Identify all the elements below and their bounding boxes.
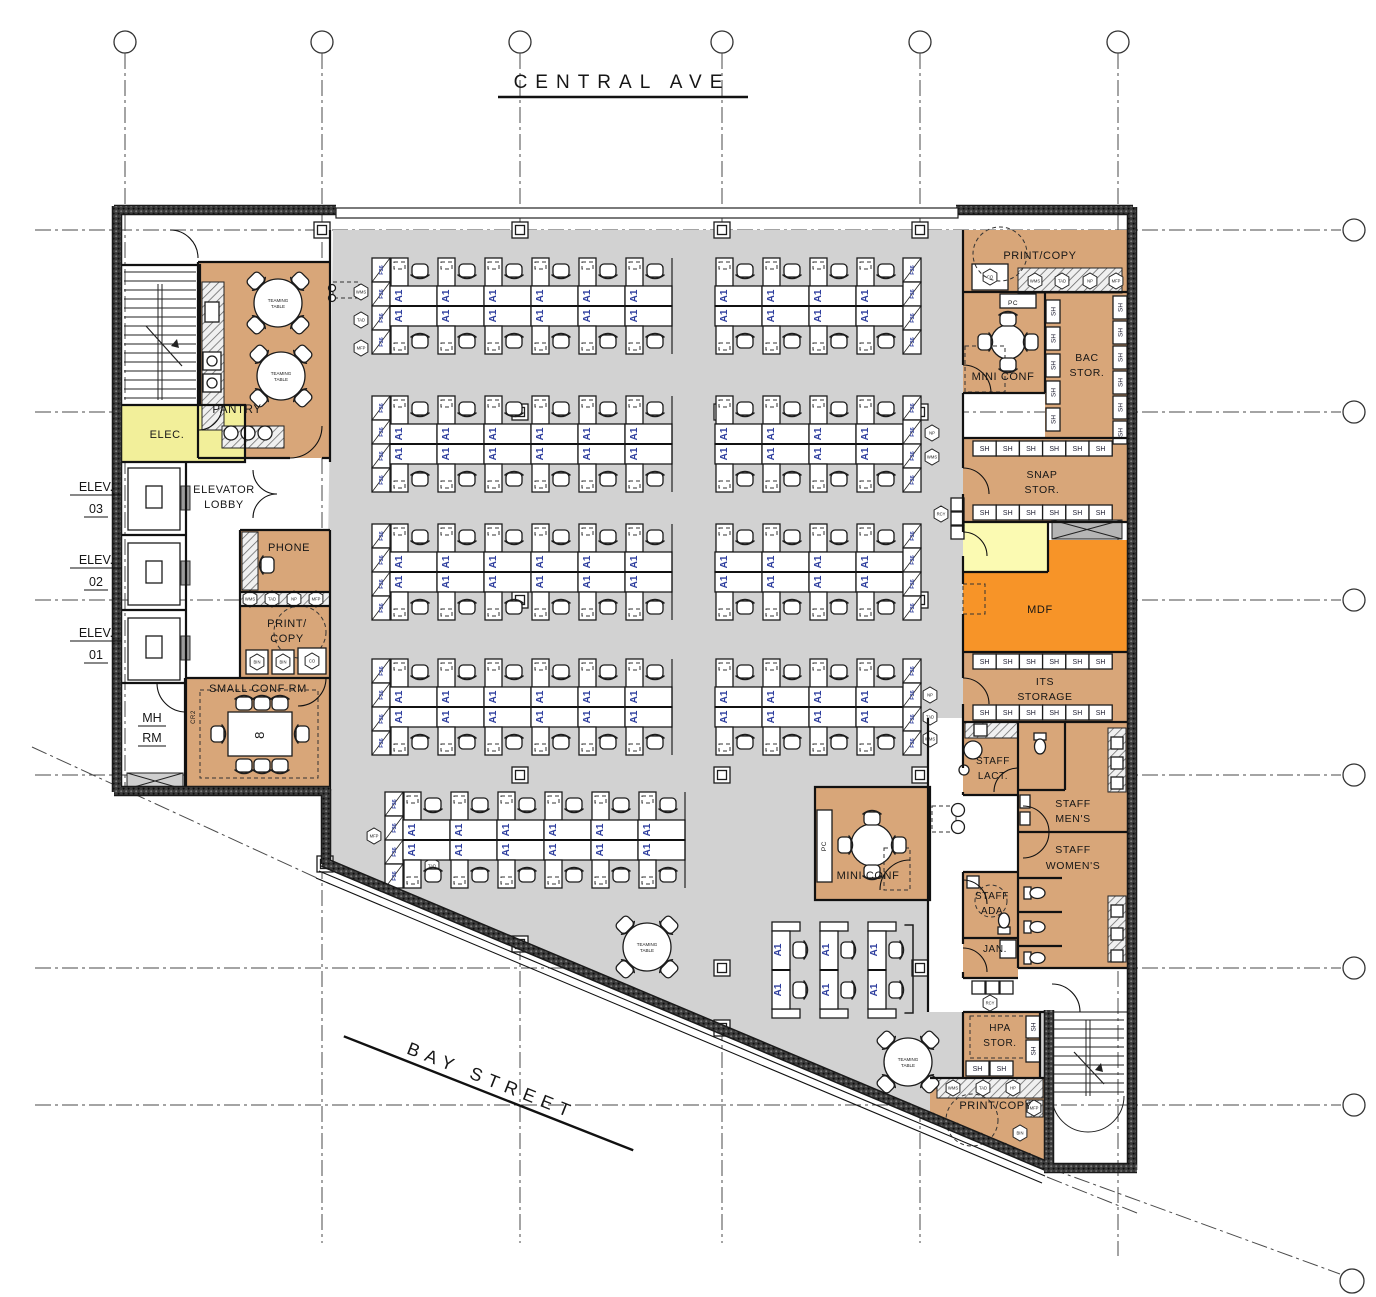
svg-text:HP: HP xyxy=(1010,1086,1016,1091)
shelf-unit: SH xyxy=(1046,408,1060,431)
grid-bubble xyxy=(1343,219,1365,241)
chair xyxy=(518,868,536,883)
svg-text:F36: F36 xyxy=(379,579,385,588)
svg-text:WMS: WMS xyxy=(356,290,366,295)
svg-text:F36: F36 xyxy=(379,289,385,298)
chair xyxy=(830,264,848,279)
svg-text:A1: A1 xyxy=(629,575,640,588)
toilet xyxy=(1024,921,1045,933)
svg-text:A1: A1 xyxy=(501,823,512,836)
chair xyxy=(565,798,583,813)
svg-text:A1: A1 xyxy=(394,575,405,588)
corridor-floor xyxy=(928,718,963,1012)
shelf-unit: SH xyxy=(973,705,996,720)
shelf-unit: SH xyxy=(996,441,1019,456)
label-pc-top: PC xyxy=(1008,300,1018,307)
svg-text:A1: A1 xyxy=(441,309,452,322)
svg-text:F36: F36 xyxy=(379,313,385,322)
svg-text:TAD: TAD xyxy=(1058,279,1066,284)
svg-text:MFP: MFP xyxy=(312,597,321,602)
label-snap1: SNAP xyxy=(1027,469,1058,481)
svg-text:A1: A1 xyxy=(821,983,832,996)
svg-text:SH: SH xyxy=(1096,510,1106,517)
svg-text:MFP: MFP xyxy=(370,834,379,839)
svg-text:A1: A1 xyxy=(441,690,452,703)
chair xyxy=(599,735,617,750)
equipment-tag-icon: CO xyxy=(305,653,319,669)
svg-text:A1: A1 xyxy=(582,575,593,588)
svg-text:NP: NP xyxy=(291,597,297,602)
svg-text:A1: A1 xyxy=(394,427,405,440)
chair xyxy=(552,735,570,750)
label-womens2: WOMEN'S xyxy=(1046,860,1101,872)
equipment-tag-icon: WMS xyxy=(354,284,368,300)
svg-text:A1: A1 xyxy=(766,289,777,302)
door-swing xyxy=(253,470,277,494)
svg-text:A1: A1 xyxy=(813,309,824,322)
grid-bubble xyxy=(1107,31,1129,53)
chair xyxy=(783,264,801,279)
equipment-tag-icon: TAD xyxy=(354,312,368,328)
svg-text:F36: F36 xyxy=(379,603,385,612)
file-storage: F36F36F36F36 xyxy=(372,659,390,755)
shelf-unit: SH xyxy=(1046,300,1060,323)
svg-text:A1: A1 xyxy=(535,447,546,460)
chair xyxy=(877,472,895,487)
svg-text:SH: SH xyxy=(1050,307,1057,316)
shelf-unit: SH xyxy=(973,441,996,456)
chair xyxy=(471,798,489,813)
chair xyxy=(458,334,476,349)
svg-text:A1: A1 xyxy=(629,710,640,723)
shelf-unit: SH xyxy=(1019,505,1042,520)
svg-text:A1: A1 xyxy=(813,690,824,703)
chair xyxy=(599,530,617,545)
svg-text:A1: A1 xyxy=(629,309,640,322)
svg-text:A1: A1 xyxy=(488,710,499,723)
svg-text:SH: SH xyxy=(1117,378,1124,387)
label-bac1: BAC xyxy=(1075,352,1098,364)
svg-text:SH: SH xyxy=(1003,510,1013,517)
chair xyxy=(999,312,1017,327)
grid-bubble xyxy=(1343,401,1365,423)
svg-text:A1: A1 xyxy=(719,289,730,302)
chair xyxy=(877,334,895,349)
svg-text:TAD: TAD xyxy=(979,1086,987,1091)
chair xyxy=(411,600,429,615)
label-printcopy-south: PRINT/COPY xyxy=(959,1100,1032,1112)
svg-text:SH: SH xyxy=(973,1066,983,1073)
svg-text:SH: SH xyxy=(1050,361,1057,370)
svg-text:F36: F36 xyxy=(910,265,916,274)
svg-text:F36: F36 xyxy=(379,738,385,747)
shelf-unit: SH xyxy=(1046,381,1060,404)
svg-text:A1: A1 xyxy=(535,710,546,723)
svg-text:A1: A1 xyxy=(535,575,546,588)
svg-text:F36: F36 xyxy=(910,555,916,564)
svg-text:SH: SH xyxy=(1049,659,1059,666)
chair xyxy=(424,798,442,813)
svg-text:F36: F36 xyxy=(392,847,398,856)
svg-text:A1: A1 xyxy=(488,690,499,703)
chair xyxy=(830,334,848,349)
teaming-table: TEAMINGTABLE xyxy=(248,343,314,409)
file-storage: F36F36F36F36 xyxy=(372,258,390,354)
svg-text:A1: A1 xyxy=(407,823,418,836)
chair xyxy=(830,600,848,615)
svg-text:A1: A1 xyxy=(454,823,465,836)
svg-text:F36: F36 xyxy=(392,823,398,832)
svg-text:A1: A1 xyxy=(488,447,499,460)
svg-text:A1: A1 xyxy=(813,427,824,440)
svg-text:F36: F36 xyxy=(910,714,916,723)
svg-text:TEAMING: TEAMING xyxy=(271,371,292,376)
chair xyxy=(552,665,570,680)
shelf-unit: SH xyxy=(1089,705,1112,720)
shelf-unit: SH xyxy=(996,505,1019,520)
svg-text:MH: MH xyxy=(142,711,161,725)
chair xyxy=(518,798,536,813)
svg-text:F36: F36 xyxy=(910,313,916,322)
label-mini-conf-south: MINI CONF xyxy=(837,870,900,882)
chair xyxy=(646,402,664,417)
chair xyxy=(411,472,429,487)
svg-text:F36: F36 xyxy=(379,714,385,723)
svg-text:CO: CO xyxy=(309,659,316,664)
equipment-tag-icon: NP xyxy=(925,425,939,441)
svg-text:F36: F36 xyxy=(379,690,385,699)
svg-text:A1: A1 xyxy=(582,555,593,568)
equipment-tag-icon: RCY xyxy=(983,995,997,1011)
svg-text:A1: A1 xyxy=(860,289,871,302)
chair xyxy=(863,811,881,826)
chair xyxy=(411,264,429,279)
shelf-unit: SH xyxy=(996,705,1019,720)
chair xyxy=(552,264,570,279)
shelf-unit: SH xyxy=(1113,396,1127,419)
chair xyxy=(295,725,310,743)
chair xyxy=(783,530,801,545)
svg-text:F36: F36 xyxy=(910,738,916,747)
svg-text:A1: A1 xyxy=(488,427,499,440)
svg-text:A1: A1 xyxy=(719,427,730,440)
svg-text:SH: SH xyxy=(1117,303,1124,312)
equipment-tag-icon: NP xyxy=(923,687,937,703)
toilet xyxy=(1034,733,1046,754)
idf-yellow-floor xyxy=(963,522,1048,572)
svg-text:A1: A1 xyxy=(582,309,593,322)
shelf-unit: SH xyxy=(973,654,996,669)
chair xyxy=(235,759,253,774)
counter xyxy=(242,532,258,590)
equipment-tag-icon: RCY xyxy=(934,506,948,522)
chair xyxy=(877,402,895,417)
grid-bubble xyxy=(909,31,931,53)
svg-text:F36: F36 xyxy=(910,690,916,699)
svg-text:SH: SH xyxy=(1117,328,1124,337)
chair xyxy=(458,402,476,417)
shelf-unit: SH xyxy=(1089,441,1112,456)
svg-text:WMS: WMS xyxy=(927,455,937,460)
svg-text:SH: SH xyxy=(1073,446,1083,453)
chair xyxy=(783,600,801,615)
svg-text:SH: SH xyxy=(980,510,990,517)
chair xyxy=(783,472,801,487)
chair xyxy=(889,941,904,959)
label-snap2: STOR. xyxy=(1025,484,1060,496)
svg-text:SH: SH xyxy=(1096,710,1106,717)
counter xyxy=(965,722,1018,738)
svg-text:TABLE: TABLE xyxy=(640,948,654,953)
svg-text:F36: F36 xyxy=(392,799,398,808)
svg-text:SH: SH xyxy=(1049,710,1059,717)
svg-text:ELEV.: ELEV. xyxy=(79,480,113,494)
label-phone: PHONE xyxy=(268,542,310,554)
svg-text:SH: SH xyxy=(1073,710,1083,717)
label-lact2: LACT. xyxy=(978,771,1008,782)
svg-text:SH: SH xyxy=(1050,334,1057,343)
equipment-tag-icon: WMS xyxy=(1028,273,1042,289)
file-storage: F36F36F36F36 xyxy=(903,659,921,755)
grid-bubble xyxy=(114,31,136,53)
svg-text:A1: A1 xyxy=(488,575,499,588)
chair xyxy=(978,333,993,351)
equipment-tag-icon: MFP xyxy=(367,828,381,844)
label-mini-conf-top: MINI CONF xyxy=(972,371,1035,383)
svg-text:A1: A1 xyxy=(454,843,465,856)
shelf-unit: SH xyxy=(1019,654,1042,669)
chair xyxy=(271,759,289,774)
svg-text:A1: A1 xyxy=(394,690,405,703)
shelf-unit: SH xyxy=(1113,371,1127,394)
label-its1: ITS xyxy=(1036,676,1054,688)
shelf-unit: SH xyxy=(1043,654,1066,669)
svg-text:SH: SH xyxy=(1050,415,1057,424)
chair xyxy=(458,472,476,487)
svg-text:A1: A1 xyxy=(501,843,512,856)
svg-text:A1: A1 xyxy=(869,983,880,996)
equipment-tag-icon: BIN xyxy=(276,654,290,670)
chair xyxy=(646,530,664,545)
chair xyxy=(552,472,570,487)
equipment-tag-icon: WMS xyxy=(243,591,257,607)
svg-text:SH: SH xyxy=(1026,659,1036,666)
chair xyxy=(260,556,275,574)
chair xyxy=(877,665,895,680)
shelf-unit: SH xyxy=(1046,354,1060,377)
svg-text:NP: NP xyxy=(1087,279,1093,284)
svg-text:A1: A1 xyxy=(535,555,546,568)
svg-text:A1: A1 xyxy=(394,710,405,723)
svg-text:F36: F36 xyxy=(379,475,385,484)
svg-text:RCY: RCY xyxy=(986,1001,995,1006)
shelf-unit: SH xyxy=(1066,654,1089,669)
file-storage: F36F36F36F36 xyxy=(903,524,921,620)
svg-text:F36: F36 xyxy=(379,337,385,346)
chair xyxy=(505,530,523,545)
equipment-tag-icon: WMS xyxy=(923,731,937,747)
label-jan: JAN. xyxy=(983,944,1007,955)
door-swing xyxy=(170,230,198,258)
equipment-tag-icon: NP xyxy=(287,591,301,607)
shelf-unit: SH xyxy=(1043,505,1066,520)
svg-text:A1: A1 xyxy=(773,983,784,996)
svg-text:SH: SH xyxy=(1003,710,1013,717)
svg-text:A1: A1 xyxy=(629,690,640,703)
svg-text:A1: A1 xyxy=(719,555,730,568)
chair xyxy=(841,981,856,999)
shelf-unit: SH xyxy=(1019,705,1042,720)
svg-text:A1: A1 xyxy=(394,555,405,568)
svg-text:F36: F36 xyxy=(910,475,916,484)
chair xyxy=(411,665,429,680)
svg-text:A1: A1 xyxy=(629,427,640,440)
svg-text:TABLE: TABLE xyxy=(274,377,288,382)
svg-text:A1: A1 xyxy=(766,575,777,588)
chair xyxy=(552,334,570,349)
teaming-table: TEAMINGTABLE xyxy=(614,914,680,980)
svg-text:SH: SH xyxy=(1003,659,1013,666)
svg-text:TABLE: TABLE xyxy=(271,304,285,309)
svg-text:A1: A1 xyxy=(535,690,546,703)
svg-text:A1: A1 xyxy=(813,289,824,302)
file-storage: F36F36F36F36 xyxy=(372,524,390,620)
svg-text:A1: A1 xyxy=(488,555,499,568)
svg-text:01: 01 xyxy=(89,648,103,662)
chair xyxy=(659,798,677,813)
equipment-tag-icon: TAD xyxy=(923,709,937,725)
svg-text:SH: SH xyxy=(1117,353,1124,362)
shelf-unit: SH xyxy=(1113,346,1127,369)
chair xyxy=(271,696,289,711)
shelf-unit: SH xyxy=(966,1061,989,1076)
svg-text:TEAMING: TEAMING xyxy=(637,942,658,947)
svg-text:A1: A1 xyxy=(773,943,784,956)
chair xyxy=(599,600,617,615)
street-label-central-ave: CENTRAL AVE xyxy=(514,72,731,93)
chair xyxy=(830,665,848,680)
svg-text:TABLE: TABLE xyxy=(901,1063,915,1068)
shelf-unit: SH xyxy=(1089,654,1112,669)
svg-text:A1: A1 xyxy=(813,710,824,723)
chair xyxy=(411,530,429,545)
chair xyxy=(552,402,570,417)
chair xyxy=(659,868,677,883)
chair xyxy=(646,665,664,680)
svg-text:SH: SH xyxy=(1117,428,1124,437)
svg-text:A1: A1 xyxy=(441,555,452,568)
door-swing xyxy=(1052,984,1080,1012)
floor-plan: WMSTADNPMFPBINBINCOWMSTADNPMFPCORCYRCYNP… xyxy=(0,0,1376,1297)
label-lact1: STAFF xyxy=(976,756,1010,767)
svg-text:A1: A1 xyxy=(629,289,640,302)
svg-text:ELEV.: ELEV. xyxy=(79,626,113,640)
svg-text:A1: A1 xyxy=(441,289,452,302)
svg-text:A1: A1 xyxy=(719,309,730,322)
label-hpa1: HPA xyxy=(989,1023,1011,1034)
shelf-unit: SH xyxy=(1066,505,1089,520)
svg-text:SH: SH xyxy=(1030,1046,1037,1055)
chair xyxy=(411,334,429,349)
svg-text:A1: A1 xyxy=(860,447,871,460)
shelf-unit: SH xyxy=(996,654,1019,669)
svg-text:ELEV.: ELEV. xyxy=(79,553,113,567)
chair xyxy=(505,665,523,680)
chair xyxy=(646,264,664,279)
chair xyxy=(211,725,226,743)
svg-text:SH: SH xyxy=(1117,403,1124,412)
shelf-unit: SH xyxy=(1113,296,1127,319)
equipment-tag-icon: HP xyxy=(1006,1080,1020,1096)
svg-text:A1: A1 xyxy=(407,843,418,856)
chair xyxy=(458,665,476,680)
svg-text:BIN: BIN xyxy=(1017,1131,1024,1136)
chair xyxy=(889,981,904,999)
grid-bubble xyxy=(1340,1269,1364,1293)
svg-text:F36: F36 xyxy=(910,403,916,412)
svg-text:A1: A1 xyxy=(582,289,593,302)
svg-text:TAD: TAD xyxy=(268,597,276,602)
svg-text:F36: F36 xyxy=(910,451,916,460)
label-bac2: STOR. xyxy=(1070,367,1105,379)
grid-bubble xyxy=(1343,1094,1365,1116)
grid-bubble xyxy=(711,31,733,53)
svg-text:A1: A1 xyxy=(441,575,452,588)
equipment-tag-icon: BIN xyxy=(1013,1125,1027,1141)
shelf-unit: SH xyxy=(1019,441,1042,456)
shelf-unit: SH xyxy=(1066,441,1089,456)
svg-text:BIN: BIN xyxy=(280,660,287,665)
svg-text:NP: NP xyxy=(927,693,933,698)
teaming-table: TEAMINGTABLE xyxy=(245,270,311,336)
chair xyxy=(599,334,617,349)
svg-text:A1: A1 xyxy=(860,555,871,568)
svg-text:A1: A1 xyxy=(394,447,405,460)
chair xyxy=(736,334,754,349)
chair xyxy=(505,334,523,349)
chair xyxy=(646,334,664,349)
street-label-bay-street: BAY STREET xyxy=(404,1038,579,1123)
svg-text:F36: F36 xyxy=(379,265,385,274)
label-ada1: STAFF xyxy=(975,891,1009,902)
toilet xyxy=(1024,887,1045,899)
label-pc-west2: COPY xyxy=(270,633,304,645)
label-small-conf: SMALL CONF RM xyxy=(209,683,307,695)
door-swing xyxy=(253,494,277,518)
svg-text:A1: A1 xyxy=(441,710,452,723)
chair xyxy=(793,941,808,959)
svg-text:TAD: TAD xyxy=(357,318,365,323)
label-its2: STORAGE xyxy=(1017,691,1072,703)
chair xyxy=(552,530,570,545)
chair xyxy=(736,264,754,279)
svg-text:WMS: WMS xyxy=(1030,279,1040,284)
equipment-tag-icon: NP xyxy=(1083,273,1097,289)
chair xyxy=(830,530,848,545)
label-pc-west1: PRINT/ xyxy=(267,618,307,630)
svg-text:SH: SH xyxy=(1096,659,1106,666)
chair xyxy=(736,530,754,545)
svg-text:SH: SH xyxy=(1026,446,1036,453)
chair xyxy=(505,472,523,487)
grid-bubble xyxy=(509,31,531,53)
chair xyxy=(253,696,271,711)
svg-text:A1: A1 xyxy=(595,823,606,836)
svg-text:A1: A1 xyxy=(488,309,499,322)
svg-text:SH: SH xyxy=(1049,510,1059,517)
chair xyxy=(505,264,523,279)
svg-text:03: 03 xyxy=(89,502,103,516)
